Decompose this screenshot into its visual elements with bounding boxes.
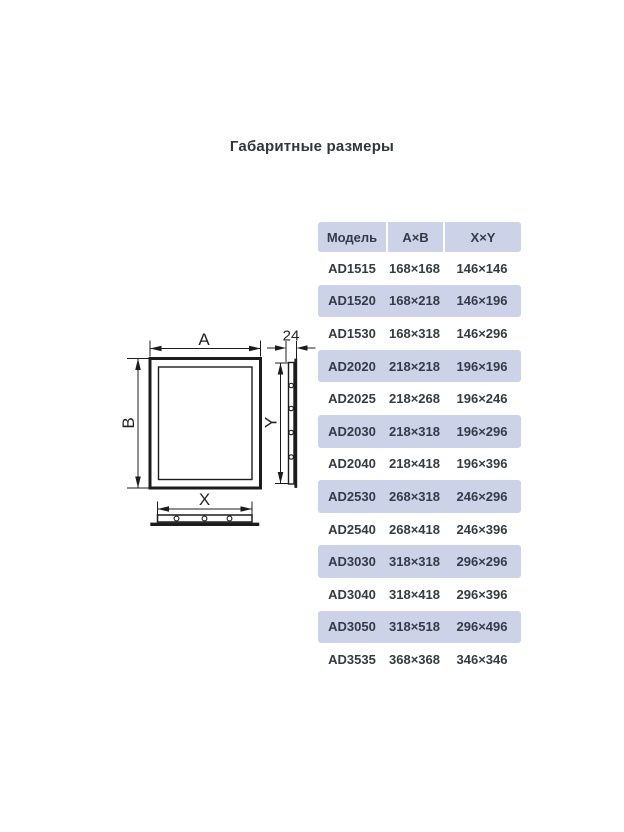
cell-ab: 218×218: [386, 359, 443, 374]
cell-model: AD2020: [318, 359, 386, 374]
cell-xy: 146×196: [443, 293, 521, 308]
table-row: AD2030 218×318 196×296: [318, 415, 521, 448]
side-profile-body: [289, 363, 295, 485]
label-y: Y: [262, 417, 281, 428]
cell-xy: 246×296: [443, 489, 521, 504]
table-row: AD1515 168×168 146×146: [318, 252, 521, 285]
mounting-hole: [289, 406, 293, 410]
front-view: [150, 359, 261, 489]
label-a: A: [198, 330, 210, 349]
cell-model: AD3050: [318, 619, 386, 634]
cell-model: AD2530: [318, 489, 386, 504]
mounting-hole: [289, 430, 293, 434]
cell-ab: 318×418: [386, 587, 443, 602]
cell-model: AD2040: [318, 456, 386, 471]
cell-xy: 196×296: [443, 424, 521, 439]
cell-ab: 318×318: [386, 554, 443, 569]
cell-ab: 218×418: [386, 456, 443, 471]
table-row: AD3030 318×318 296×296: [318, 545, 521, 578]
bottom-profile: [152, 515, 258, 524]
table-header: Модель A×B X×Y: [318, 222, 521, 252]
table-row: AD2040 218×418 196×396: [318, 448, 521, 481]
size-table: Модель A×B X×Y AD1515 168×168 146×146 AD…: [318, 222, 521, 676]
front-view-inner-frame: [159, 367, 253, 480]
table-row: AD1530 168×318 146×296: [318, 317, 521, 350]
dimension-a: A: [150, 330, 261, 356]
cell-model: AD3030: [318, 554, 386, 569]
table-row: AD2540 268×418 246×396: [318, 513, 521, 546]
table-row: AD3050 318×518 296×496: [318, 611, 521, 644]
table-row: AD1520 168×218 146×196: [318, 285, 521, 318]
mounting-hole: [289, 455, 293, 459]
table-row: AD3535 368×368 346×346: [318, 643, 521, 676]
mounting-hole: [202, 516, 207, 521]
cell-ab: 168×318: [386, 326, 443, 341]
cell-model: AD2025: [318, 391, 386, 406]
table-body: AD1515 168×168 146×146 AD1520 168×218 14…: [318, 252, 521, 676]
header-ab: A×B: [386, 222, 443, 252]
side-profile: [289, 360, 296, 487]
mounting-hole: [289, 383, 293, 387]
label-b: B: [119, 417, 138, 428]
dimension-diagram: A B X: [100, 325, 320, 555]
cell-ab: 218×318: [386, 424, 443, 439]
page-title: Габаритные размеры: [0, 138, 624, 155]
cell-xy: 146×296: [443, 326, 521, 341]
table-row: AD3040 318×418 296×396: [318, 578, 521, 611]
dimension-y: Y: [262, 363, 289, 484]
table-row: AD2530 268×318 246×296: [318, 480, 521, 513]
dimension-depth: 24: [268, 328, 316, 362]
cell-xy: 296×396: [443, 587, 521, 602]
cell-model: AD1520: [318, 293, 386, 308]
table-row: AD2025 218×268 196×246: [318, 382, 521, 415]
cell-model: AD2030: [318, 424, 386, 439]
mounting-hole: [174, 516, 179, 521]
mounting-hole: [227, 516, 232, 521]
page: Габаритные размеры A: [0, 0, 624, 832]
header-xy: X×Y: [443, 222, 521, 252]
cell-ab: 268×318: [386, 489, 443, 504]
cell-xy: 196×196: [443, 359, 521, 374]
cell-ab: 168×218: [386, 293, 443, 308]
label-x: X: [199, 490, 210, 509]
cell-ab: 168×168: [386, 261, 443, 276]
header-model: Модель: [318, 222, 386, 252]
cell-xy: 346×346: [443, 652, 521, 667]
cell-model: AD1515: [318, 261, 386, 276]
cell-model: AD3040: [318, 587, 386, 602]
table-row: AD2020 218×218 196×196: [318, 350, 521, 383]
cell-xy: 146×146: [443, 261, 521, 276]
cell-xy: 296×296: [443, 554, 521, 569]
cell-ab: 268×418: [386, 522, 443, 537]
cell-model: AD3535: [318, 652, 386, 667]
cell-ab: 318×518: [386, 619, 443, 634]
dimension-drawing: A B X: [100, 325, 320, 555]
cell-xy: 196×246: [443, 391, 521, 406]
cell-model: AD2540: [318, 522, 386, 537]
cell-xy: 246×396: [443, 522, 521, 537]
label-depth: 24: [283, 328, 300, 345]
cell-xy: 296×496: [443, 619, 521, 634]
cell-xy: 196×396: [443, 456, 521, 471]
cell-model: AD1530: [318, 326, 386, 341]
dimension-x: X: [158, 490, 253, 518]
cell-ab: 218×268: [386, 391, 443, 406]
dimension-b: B: [119, 359, 149, 489]
cell-ab: 368×368: [386, 652, 443, 667]
